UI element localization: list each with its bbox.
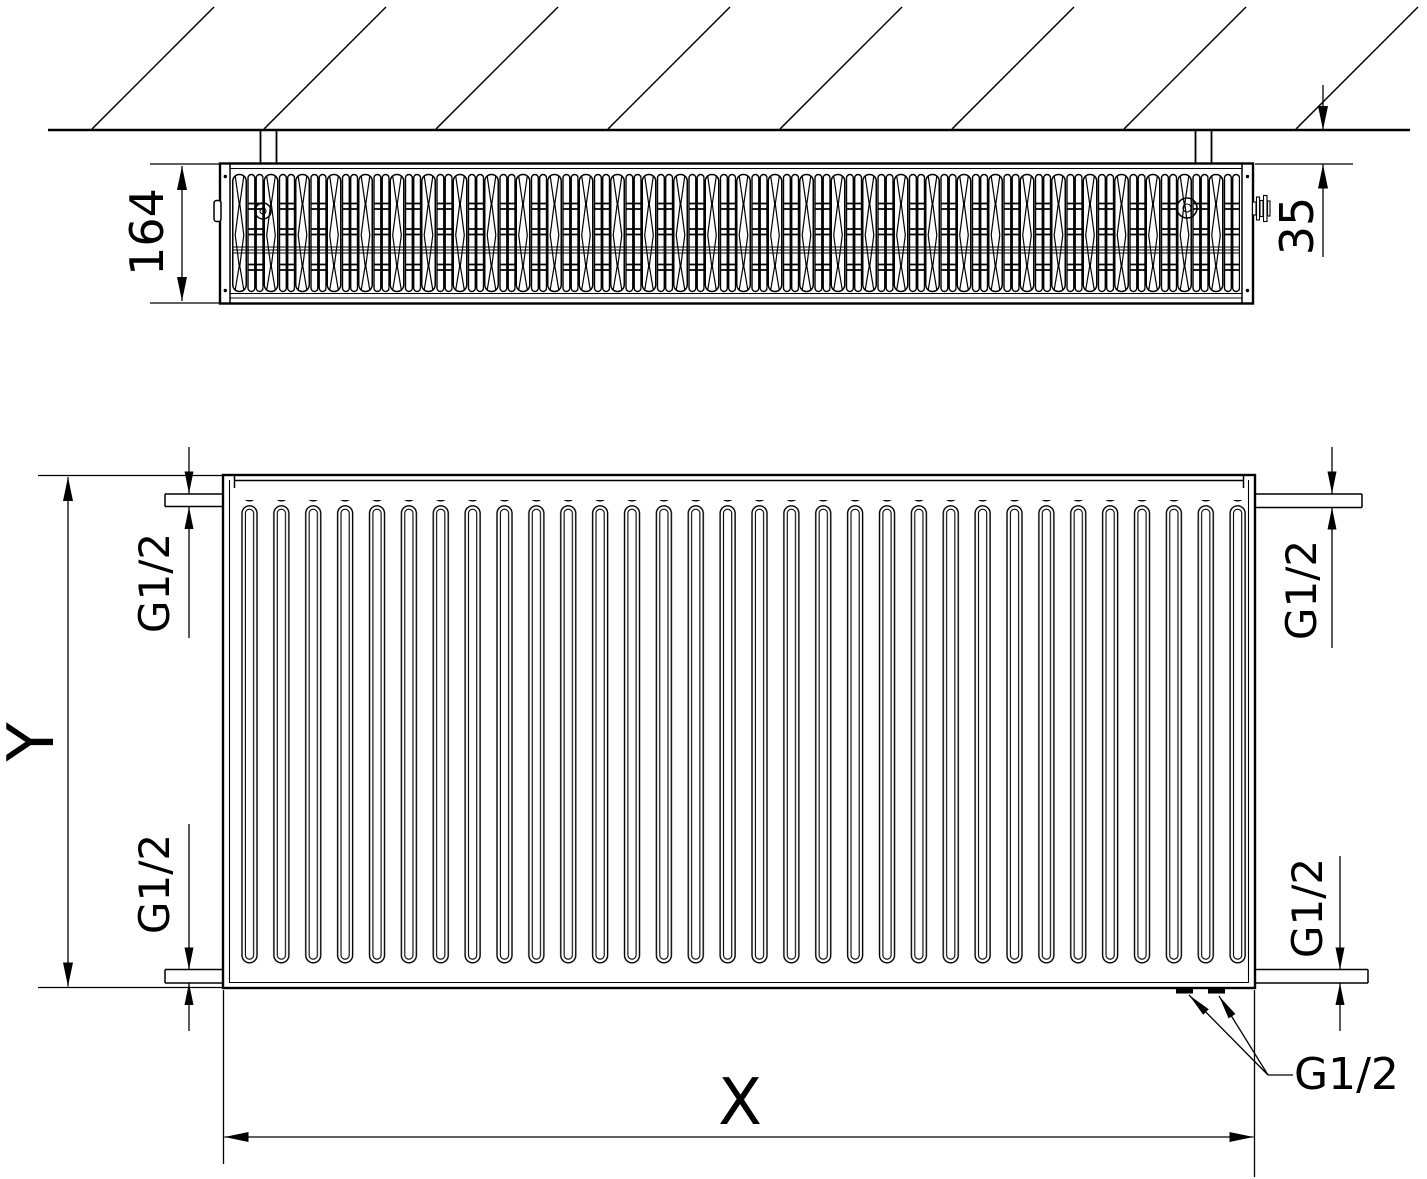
thread-label-top-right: G1/2 bbox=[1277, 540, 1326, 640]
left-connection-boss bbox=[214, 201, 221, 222]
depth-dimension-label: 164 bbox=[120, 188, 174, 276]
radiator-top-view bbox=[214, 164, 1270, 304]
bottom-outlet-left bbox=[1176, 989, 1193, 994]
radiator-technical-drawing: 164 35 bbox=[0, 0, 1427, 1179]
bottom-outlets-label: G1/2 bbox=[1294, 1049, 1399, 1100]
front-panel-grooves bbox=[229, 500, 1249, 966]
thread-label-bottom-right: G1/2 bbox=[1283, 858, 1332, 958]
radiator-front-view bbox=[223, 475, 1255, 994]
drawing-svg: 164 35 bbox=[0, 0, 1427, 1179]
width-dimension-label: X bbox=[718, 1066, 762, 1140]
wall-gap-dimension-label: 35 bbox=[1270, 197, 1324, 256]
thread-label-bottom-left: G1/2 bbox=[130, 834, 179, 934]
height-dimension-label: Y bbox=[0, 722, 69, 763]
thread-label-top-left: G1/2 bbox=[130, 533, 179, 633]
bottom-outlet-right bbox=[1208, 989, 1225, 994]
convector-fins bbox=[232, 173, 1240, 293]
